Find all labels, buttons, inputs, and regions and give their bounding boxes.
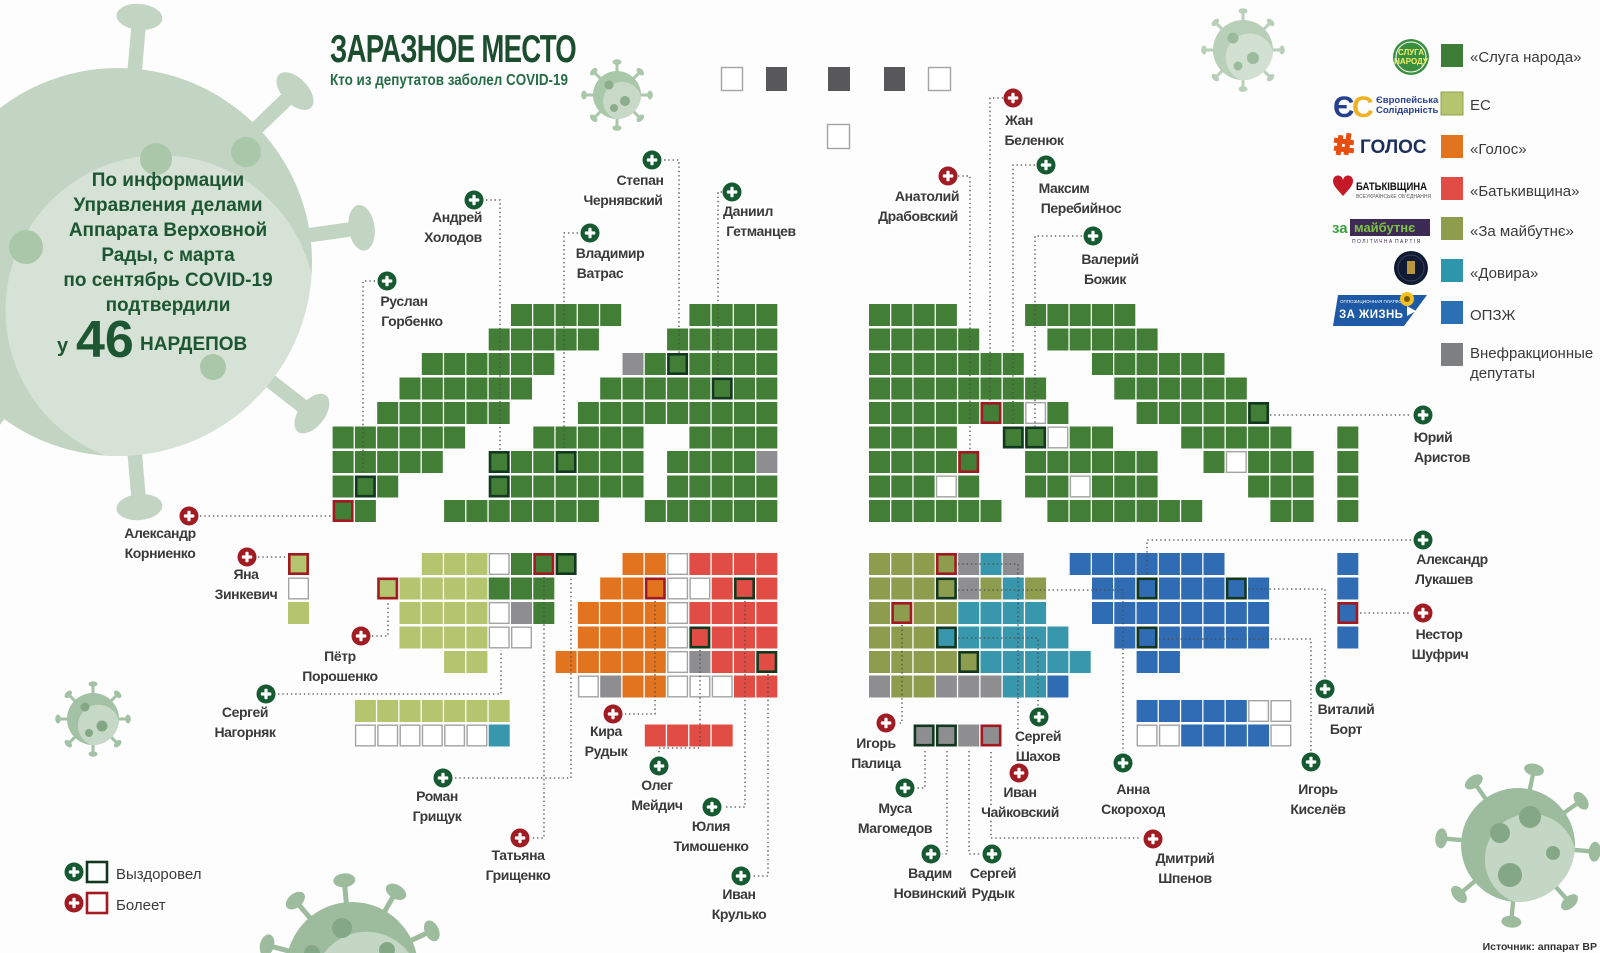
svg-text:Кира: Кира (590, 723, 623, 739)
svg-text:Аппарата Верховной: Аппарата Верховной (69, 220, 267, 241)
svg-text:Грищук: Грищук (413, 808, 463, 824)
svg-text:Руслан: Руслан (380, 293, 427, 309)
svg-text:«Слуга народа»: «Слуга народа» (1470, 49, 1582, 66)
svg-text:Игорь: Игорь (1298, 781, 1338, 797)
svg-text:Олег: Олег (641, 777, 673, 793)
svg-text:Пётр: Пётр (324, 648, 356, 664)
svg-text:Юрий: Юрий (1414, 429, 1453, 445)
svg-text:Зинкевич: Зинкевич (215, 586, 278, 602)
svg-text:Лукашев: Лукашев (1415, 571, 1473, 587)
svg-text:«Батькивщина»: «Батькивщина» (1470, 183, 1579, 200)
svg-text:Виталий: Виталий (1318, 701, 1375, 717)
svg-text:Дмитрий: Дмитрий (1156, 850, 1215, 866)
svg-text:майбутнє: майбутнє (1354, 220, 1415, 235)
svg-text:Александр: Александр (1416, 551, 1487, 567)
svg-text:Чайковский: Чайковский (981, 804, 1059, 820)
svg-text:Управления делами: Управления делами (73, 195, 262, 216)
svg-text:ЗА ЖИЗНЬ: ЗА ЖИЗНЬ (1339, 309, 1403, 321)
svg-text:Грищенко: Грищенко (486, 867, 551, 883)
svg-text:Сергей: Сергей (1015, 728, 1061, 744)
svg-text:П О Л І Т И Ч Н А П А Р Т І Я: П О Л І Т И Ч Н А П А Р Т І Я (1352, 239, 1421, 245)
svg-text:Иван: Иван (722, 886, 755, 902)
svg-text:Шпенов: Шпенов (1158, 870, 1212, 886)
svg-text:Рады, с марта: Рады, с марта (101, 245, 235, 266)
svg-text:Яна: Яна (233, 566, 259, 582)
svg-text:Порошенко: Порошенко (302, 668, 377, 684)
svg-text:Драбовский: Драбовский (878, 208, 958, 224)
svg-text:Рудык: Рудык (972, 885, 1016, 901)
svg-text:Новинский: Новинский (894, 885, 967, 901)
svg-text:Нестор: Нестор (1416, 626, 1463, 642)
svg-text:депутаты: депутаты (1470, 365, 1535, 382)
svg-text:Холодов: Холодов (424, 229, 482, 245)
svg-text:за: за (1332, 220, 1348, 237)
svg-text:По информации: По информации (92, 170, 244, 191)
svg-text:Тимошенко: Тимошенко (673, 838, 748, 854)
svg-text:Божик: Божик (1084, 271, 1127, 287)
svg-text:Даниил: Даниил (723, 203, 773, 219)
svg-text:по сентябрь COVID-19: по сентябрь COVID-19 (63, 270, 272, 291)
svg-text:НАРОДУ: НАРОДУ (1394, 57, 1429, 66)
svg-text:46: 46 (76, 311, 134, 369)
svg-text:ВСЕУКРАЇНСЬКЕ ОБʼЄДНАННЯ: ВСЕУКРАЇНСЬКЕ ОБʼЄДНАННЯ (1356, 193, 1431, 200)
svg-text:Муса: Муса (878, 800, 912, 816)
svg-text:ЗАРАЗНОЕ МЕСТО: ЗАРАЗНОЕ МЕСТО (330, 28, 576, 71)
svg-text:Рудык: Рудык (585, 743, 629, 759)
svg-text:Горбенко: Горбенко (381, 313, 442, 329)
svg-text:Вадим: Вадим (908, 865, 952, 881)
svg-text:Солідарність: Солідарність (1376, 105, 1439, 116)
svg-text:Роман: Роман (416, 788, 458, 804)
svg-text:СЛУГА: СЛУГА (1398, 48, 1424, 57)
svg-text:Владимир: Владимир (576, 245, 645, 261)
svg-text:Валерий: Валерий (1081, 251, 1138, 267)
svg-text:Скороход: Скороход (1101, 801, 1165, 817)
svg-text:Жан: Жан (1004, 112, 1033, 128)
svg-text:ГОЛОС: ГОЛОС (1360, 137, 1427, 158)
svg-text:Кто из депутатов заболел COVID: Кто из депутатов заболел COVID-19 (330, 72, 568, 89)
svg-text:Источник: аппарат ВР: Источник: аппарат ВР (1483, 941, 1597, 953)
svg-text:Степан: Степан (616, 172, 663, 188)
svg-text:ОПЗЖ: ОПЗЖ (1470, 307, 1516, 324)
svg-text:Юлия: Юлия (692, 818, 730, 834)
svg-text:Иван: Иван (1003, 784, 1036, 800)
svg-text:ЕС: ЕС (1470, 97, 1491, 114)
svg-text:Александр: Александр (124, 525, 195, 541)
svg-text:«Голос»: «Голос» (1470, 141, 1527, 158)
svg-text:Мейдич: Мейдич (631, 797, 683, 813)
svg-text:Татьяна: Татьяна (491, 847, 545, 863)
svg-text:НАРДЕПОВ: НАРДЕПОВ (140, 334, 247, 355)
svg-text:Болеет: Болеет (116, 897, 166, 914)
svg-text:Выздоровел: Выздоровел (116, 866, 202, 883)
svg-text:Перебийнос: Перебийнос (1041, 200, 1122, 216)
svg-text:Шуфрич: Шуфрич (1412, 646, 1469, 662)
svg-text:Сергей: Сергей (970, 865, 1016, 881)
svg-text:Аристов: Аристов (1414, 449, 1471, 465)
svg-text:Андрей: Андрей (432, 209, 482, 225)
svg-text:С: С (1352, 91, 1374, 124)
svg-text:БАТЬКІВЩИНА: БАТЬКІВЩИНА (1356, 181, 1427, 193)
svg-text:Беленюк: Беленюк (1005, 132, 1065, 148)
svg-text:«Довира»: «Довира» (1470, 265, 1538, 282)
svg-text:Ватрас: Ватрас (577, 265, 624, 281)
svg-text:Палица: Палица (851, 755, 901, 771)
svg-text:у: у (57, 335, 69, 357)
svg-text:Нагорняк: Нагорняк (214, 724, 276, 740)
svg-text:Гетманцев: Гетманцев (726, 223, 796, 239)
svg-text:Внефракционные: Внефракционные (1470, 345, 1593, 362)
svg-text:Игорь: Игорь (856, 735, 896, 751)
svg-text:Борт: Борт (1330, 721, 1363, 737)
svg-text:Шахов: Шахов (1016, 748, 1061, 764)
svg-text:Киселёв: Киселёв (1290, 801, 1346, 817)
svg-text:Анна: Анна (1116, 781, 1150, 797)
svg-text:Магомедов: Магомедов (858, 820, 933, 836)
svg-text:Чернявский: Чернявский (583, 192, 662, 208)
svg-text:Сергей: Сергей (222, 704, 268, 720)
svg-text:Корниенко: Корниенко (125, 545, 196, 561)
svg-text:Максим: Максим (1039, 180, 1090, 196)
svg-text:Крулько: Крулько (712, 906, 767, 922)
svg-text:Анатолий: Анатолий (895, 188, 959, 204)
svg-text:«За майбутнє»: «За майбутнє» (1470, 223, 1574, 240)
